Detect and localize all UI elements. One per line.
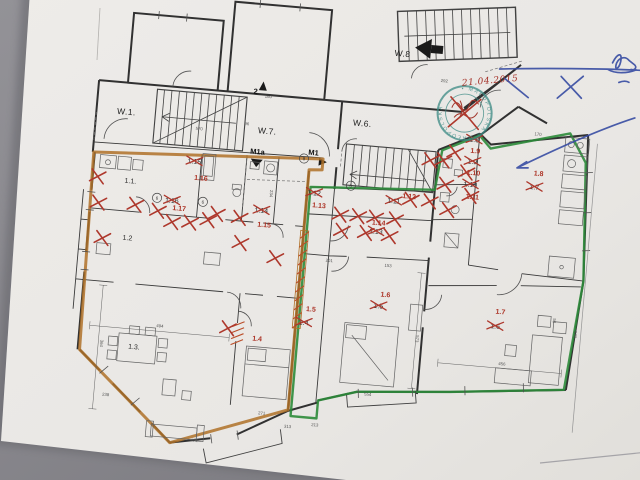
- vignette: [0, 0, 640, 480]
- screenshot-root: 5709629216023449436420115357355445657227…: [0, 0, 640, 480]
- floor-plan-photo: 5709629216023449436420115357355445657227…: [0, 0, 640, 480]
